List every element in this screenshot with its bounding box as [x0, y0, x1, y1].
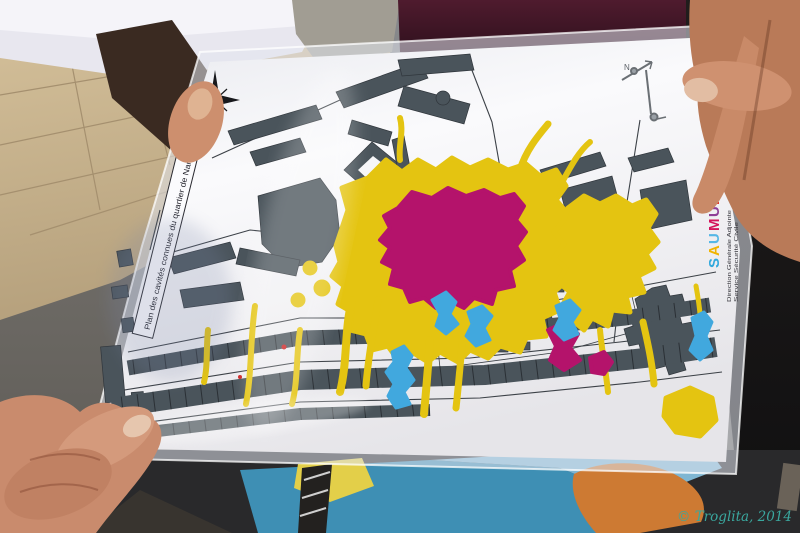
red-marker-dot — [238, 375, 242, 379]
logo-org-line1: Direction Générale Adjointe — [727, 210, 733, 302]
logo-org-line2: Service Sécurité Civile — [734, 222, 740, 302]
logo-letter: S — [706, 258, 723, 268]
sheet-shadow — [108, 218, 232, 382]
north-label: N — [624, 63, 630, 72]
logo-letter: U — [706, 233, 723, 244]
logo-letter: A — [706, 245, 723, 256]
photo-of-held-map: Plan des cavités connues du quartier de … — [0, 0, 800, 533]
watermark-text: © Troglita, 2014 — [677, 509, 792, 525]
logo-letter: M — [706, 219, 723, 232]
